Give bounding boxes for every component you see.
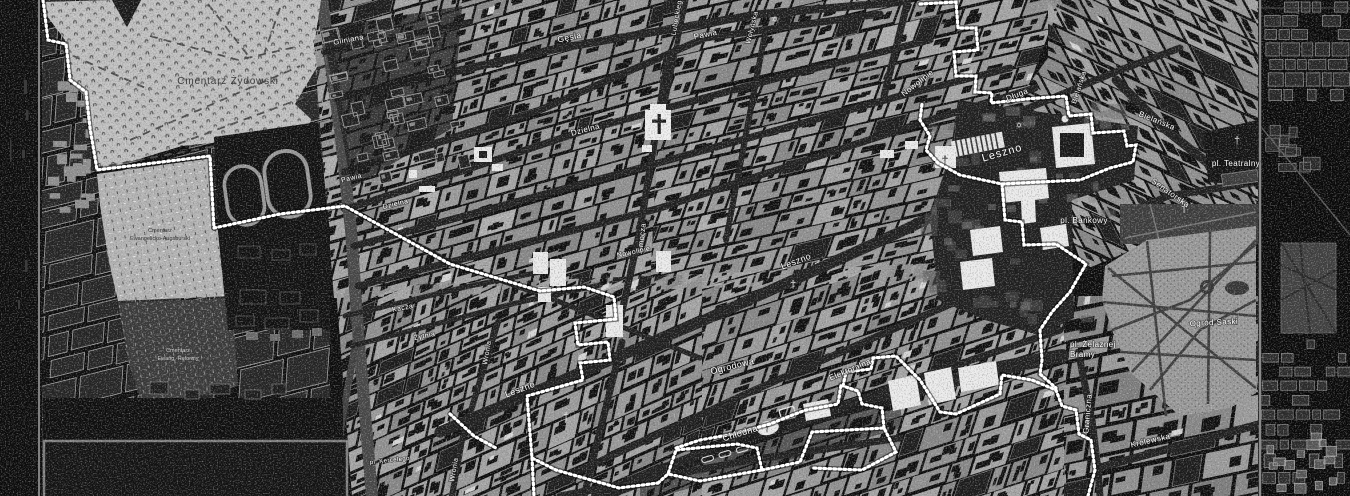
svg-text:Ewang.-Reformy: Ewang.-Reformy <box>158 356 199 362</box>
svg-text:pl. Żelaznej: pl. Żelaznej <box>1070 340 1116 349</box>
svg-text:Ewangelicko-Augsburski: Ewangelicko-Augsburski <box>130 236 190 242</box>
svg-text:Bramy: Bramy <box>1070 350 1095 359</box>
svg-text:pl. Teatralny: pl. Teatralny <box>1212 159 1260 168</box>
svg-text:pl. Bankowy: pl. Bankowy <box>1060 216 1108 225</box>
svg-text:Cmentarz: Cmentarz <box>166 348 190 354</box>
svg-text:Cmentarz Żydowski: Cmentarz Żydowski <box>177 74 278 87</box>
svg-text:Cmentarz: Cmentarz <box>148 228 172 234</box>
